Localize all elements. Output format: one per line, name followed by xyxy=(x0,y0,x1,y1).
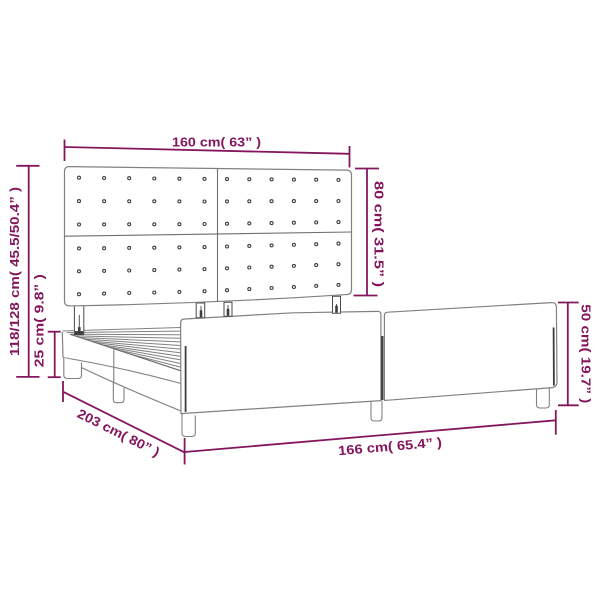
svg-text:25 cm( 9.8” ): 25 cm( 9.8” ) xyxy=(32,274,47,367)
svg-text:80 cm( 31.5” ): 80 cm( 31.5” ) xyxy=(372,181,387,287)
svg-text:160 cm( 63” ): 160 cm( 63” ) xyxy=(172,134,261,149)
svg-text:50 cm( 19.7” ): 50 cm( 19.7” ) xyxy=(578,304,593,403)
svg-text:118/128 cm( 45.5/50.4” ): 118/128 cm( 45.5/50.4” ) xyxy=(7,187,22,356)
